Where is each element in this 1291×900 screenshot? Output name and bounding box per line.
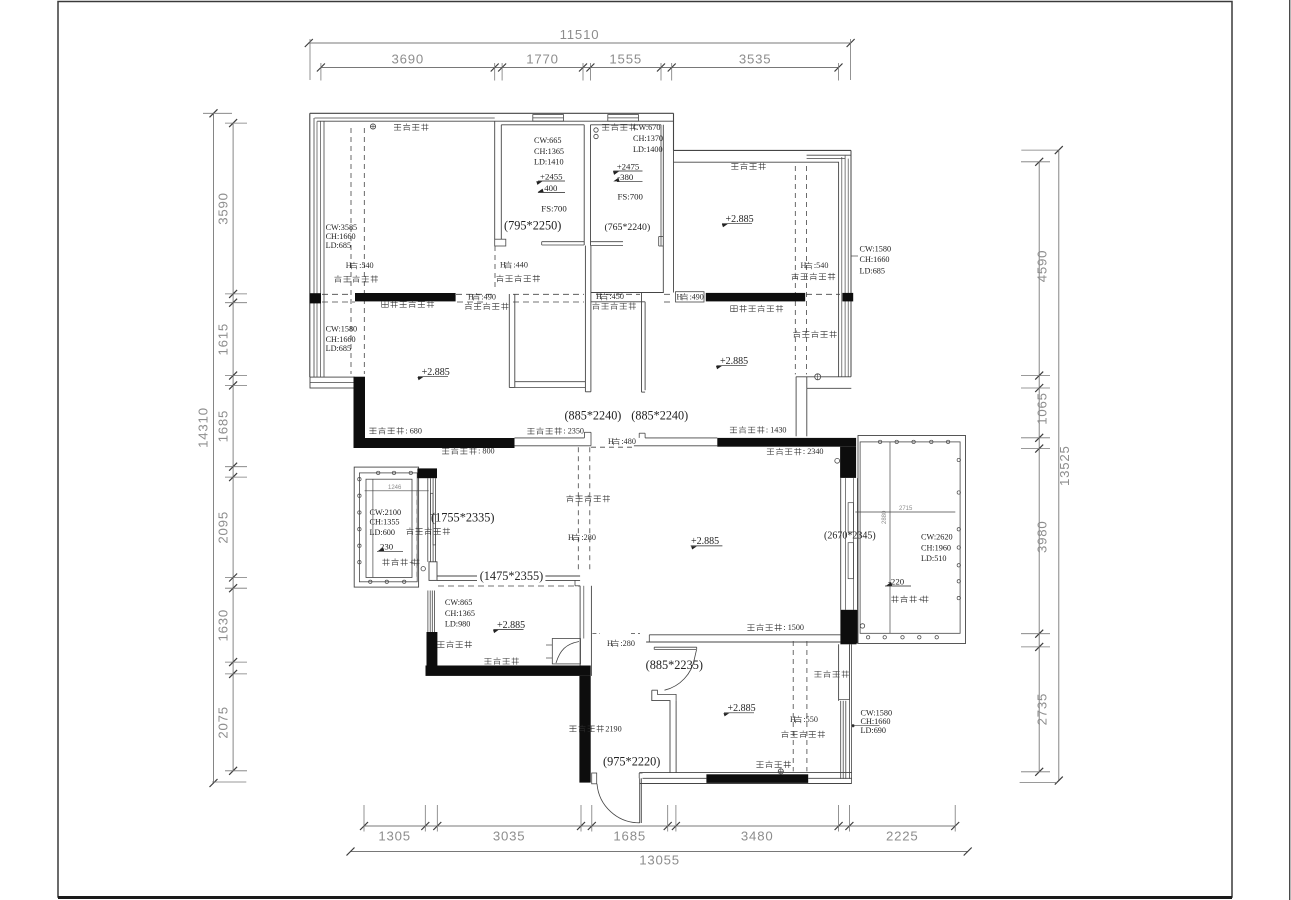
svg-text:(1475*2355): (1475*2355) xyxy=(480,569,544,583)
svg-text:CH:1660: CH:1660 xyxy=(860,255,890,264)
svg-text:LD:1400: LD:1400 xyxy=(633,145,663,154)
svg-text:1615: 1615 xyxy=(216,323,231,356)
svg-text:14310: 14310 xyxy=(196,407,211,448)
svg-text:CH:1660: CH:1660 xyxy=(861,717,891,726)
svg-text:CW:2100: CW:2100 xyxy=(370,508,402,517)
svg-text:(765*2240): (765*2240) xyxy=(605,222,651,233)
svg-text:CW:3585: CW:3585 xyxy=(326,223,358,232)
svg-text:(1755*2335): (1755*2335) xyxy=(431,511,495,525)
svg-text:3590: 3590 xyxy=(216,192,231,225)
svg-text:1770: 1770 xyxy=(526,52,559,67)
svg-text:1065: 1065 xyxy=(1035,392,1050,425)
svg-text:LD:685: LD:685 xyxy=(326,241,351,250)
svg-text:(795*2250): (795*2250) xyxy=(504,218,561,232)
svg-text:H: H xyxy=(607,639,613,648)
svg-text:LD:510: LD:510 xyxy=(921,554,946,563)
svg-text::280: :280 xyxy=(620,639,635,648)
svg-text:4590: 4590 xyxy=(1035,250,1050,283)
svg-text::540: :540 xyxy=(814,261,829,270)
svg-text:CH:1365: CH:1365 xyxy=(534,147,564,156)
svg-text:(885*2235): (885*2235) xyxy=(646,658,703,672)
svg-text:LD:685: LD:685 xyxy=(860,266,885,275)
svg-text:13525: 13525 xyxy=(1057,445,1072,486)
svg-text:+: + xyxy=(918,595,923,604)
svg-text:CH:1660: CH:1660 xyxy=(326,335,356,344)
svg-text:LD:980: LD:980 xyxy=(445,619,470,628)
svg-text::480: :480 xyxy=(621,437,636,446)
svg-text:FS:700: FS:700 xyxy=(618,192,644,202)
svg-text::550: :550 xyxy=(803,715,818,724)
svg-text:2190: 2190 xyxy=(605,724,621,733)
svg-text:1246: 1246 xyxy=(388,485,402,491)
svg-text:+2.885: +2.885 xyxy=(728,703,756,714)
svg-text:FS:700: FS:700 xyxy=(541,203,567,213)
svg-text:-380: -380 xyxy=(617,172,634,182)
svg-text:H: H xyxy=(596,292,602,301)
svg-text:H: H xyxy=(677,292,683,301)
svg-text:LD:1410: LD:1410 xyxy=(534,158,564,167)
svg-text:3535: 3535 xyxy=(739,52,772,67)
svg-text:3035: 3035 xyxy=(493,829,526,844)
svg-text:+2455: +2455 xyxy=(540,171,563,181)
svg-text:CH:1365: CH:1365 xyxy=(445,609,475,618)
svg-text:CH:1660: CH:1660 xyxy=(326,232,356,241)
svg-text:2735: 2735 xyxy=(1035,693,1050,726)
svg-text:: 680: : 680 xyxy=(405,426,422,435)
svg-text:3480: 3480 xyxy=(741,829,774,844)
svg-text:LD:690: LD:690 xyxy=(861,726,886,735)
svg-text:CH:1355: CH:1355 xyxy=(370,518,400,527)
svg-text::490: :490 xyxy=(690,292,704,301)
svg-text:H: H xyxy=(608,437,614,446)
svg-text:(885*2240): (885*2240) xyxy=(631,409,688,423)
svg-text:1685: 1685 xyxy=(613,829,646,844)
svg-text:2225: 2225 xyxy=(886,829,919,844)
svg-text:+2475: +2475 xyxy=(617,161,640,171)
svg-text:2095: 2095 xyxy=(216,511,231,544)
svg-text:2075: 2075 xyxy=(216,706,231,739)
svg-text:3980: 3980 xyxy=(1035,520,1050,553)
svg-text::490: :490 xyxy=(481,292,496,301)
svg-text::440: :440 xyxy=(513,261,528,270)
svg-text:CW:670: CW:670 xyxy=(633,123,660,132)
svg-text:LD:685: LD:685 xyxy=(326,344,351,353)
svg-text:H: H xyxy=(500,261,506,270)
svg-text:2880: 2880 xyxy=(882,510,888,524)
svg-text:H: H xyxy=(568,533,574,542)
svg-text:H: H xyxy=(801,261,807,270)
svg-text:: 1430: : 1430 xyxy=(766,426,787,435)
svg-text:: 1500: : 1500 xyxy=(783,623,804,632)
svg-text:LD:600: LD:600 xyxy=(370,528,395,537)
svg-text::450: :450 xyxy=(609,292,624,301)
svg-text:CW:1580: CW:1580 xyxy=(860,245,892,254)
svg-text:13055: 13055 xyxy=(639,853,680,868)
svg-text::540: :540 xyxy=(359,261,374,270)
svg-text:H: H xyxy=(790,715,796,724)
svg-text:CW:1580: CW:1580 xyxy=(326,325,358,334)
svg-text:1685: 1685 xyxy=(216,410,231,443)
svg-text:+2.885: +2.885 xyxy=(691,536,719,547)
svg-text:1630: 1630 xyxy=(216,609,231,642)
svg-text:+2.885: +2.885 xyxy=(497,620,525,631)
svg-text:1555: 1555 xyxy=(609,52,642,67)
svg-text::280: :280 xyxy=(581,533,596,542)
svg-text:+: + xyxy=(409,558,414,567)
svg-text:CW:665: CW:665 xyxy=(534,136,561,145)
svg-text:400: 400 xyxy=(544,183,558,193)
svg-text:: 2350: : 2350 xyxy=(563,427,584,436)
svg-text:1305: 1305 xyxy=(378,829,411,844)
svg-text:(885*2240): (885*2240) xyxy=(565,409,622,423)
svg-text:CH:1370: CH:1370 xyxy=(633,134,663,143)
svg-text:3690: 3690 xyxy=(392,52,425,67)
svg-text:H: H xyxy=(346,261,352,270)
svg-text:(975*2220): (975*2220) xyxy=(603,754,660,768)
svg-text:11510: 11510 xyxy=(560,27,600,42)
svg-text:CW:865: CW:865 xyxy=(445,598,472,607)
svg-text:2715: 2715 xyxy=(899,506,913,512)
svg-text:CH:1960: CH:1960 xyxy=(921,544,951,553)
svg-text:: 2340: : 2340 xyxy=(803,447,824,456)
svg-text:H: H xyxy=(468,292,474,301)
svg-text:: 800: : 800 xyxy=(478,447,495,456)
svg-text:CW:2620: CW:2620 xyxy=(921,533,953,542)
